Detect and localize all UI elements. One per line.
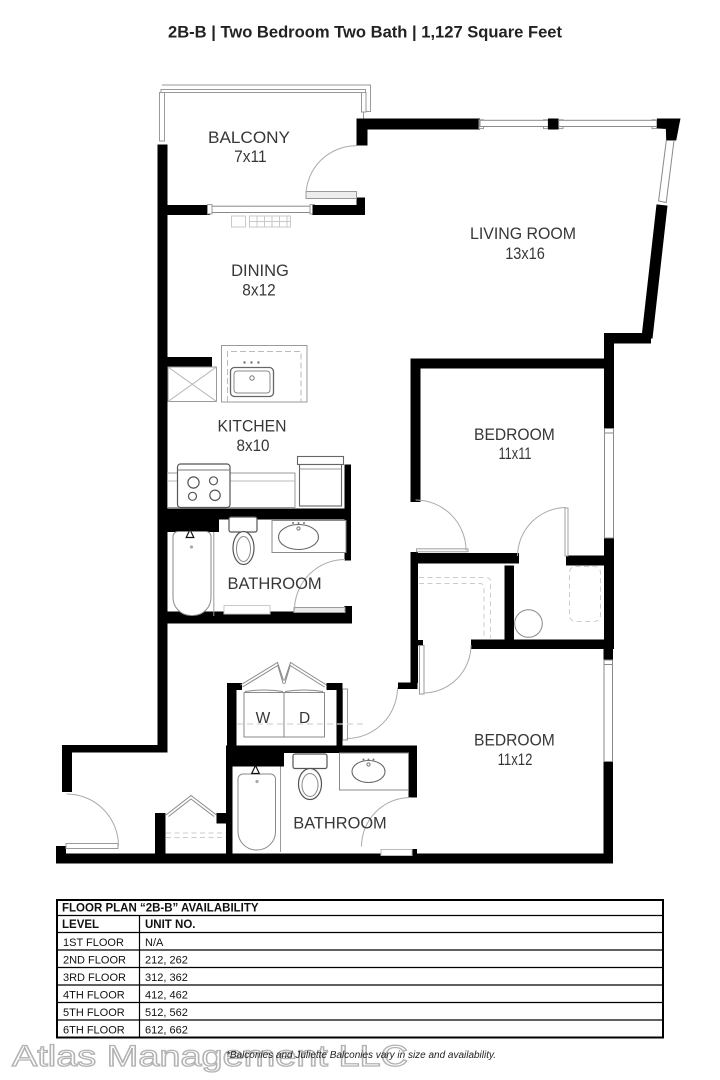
svg-text:1ST FLOOR: 1ST FLOOR <box>63 937 124 949</box>
svg-text:BEDROOM: BEDROOM <box>474 425 555 444</box>
svg-text:8x12: 8x12 <box>242 282 275 300</box>
svg-text:BATHROOM: BATHROOM <box>228 574 322 593</box>
svg-text:412, 462: 412, 462 <box>145 990 188 1002</box>
svg-text:BALCONY: BALCONY <box>208 128 290 147</box>
svg-text:BATHROOM: BATHROOM <box>293 813 386 832</box>
svg-text:11x11: 11x11 <box>499 445 532 463</box>
svg-text:13x16: 13x16 <box>505 245 545 263</box>
svg-text:LIVING ROOM: LIVING ROOM <box>470 224 576 243</box>
svg-text:2B-B | Two Bedroom Two Bath |: 2B-B | Two Bedroom Two Bath | 1,127 Squa… <box>168 23 562 42</box>
svg-text:LEVEL: LEVEL <box>62 919 99 931</box>
svg-text:212, 262: 212, 262 <box>145 955 188 967</box>
svg-text:4TH FLOOR: 4TH FLOOR <box>63 990 125 1002</box>
svg-text:W: W <box>256 710 271 727</box>
svg-text:D: D <box>299 710 310 727</box>
svg-text:612, 662: 612, 662 <box>145 1025 188 1037</box>
svg-text:8x10: 8x10 <box>237 437 270 455</box>
svg-text:512, 562: 512, 562 <box>145 1007 188 1019</box>
svg-text:FLOOR PLAN “2B-B” AVAILABILITY: FLOOR PLAN “2B-B” AVAILABILITY <box>62 903 259 915</box>
svg-text:DINING: DINING <box>231 261 289 280</box>
svg-text:2ND FLOOR: 2ND FLOOR <box>63 955 126 967</box>
svg-text:312, 362: 312, 362 <box>145 972 188 984</box>
svg-text:BEDROOM: BEDROOM <box>474 731 555 750</box>
svg-text:11x12: 11x12 <box>498 751 533 769</box>
svg-text:N/A: N/A <box>145 937 164 949</box>
svg-text:*Balconies and Juliette Balcon: *Balconies and Juliette Balconies vary i… <box>226 1050 496 1061</box>
svg-text:KITCHEN: KITCHEN <box>218 417 287 436</box>
svg-text:3RD FLOOR: 3RD FLOOR <box>63 972 126 984</box>
svg-text:UNIT NO.: UNIT NO. <box>145 919 195 931</box>
svg-text:6TH FLOOR: 6TH FLOOR <box>63 1025 125 1037</box>
svg-text:7x11: 7x11 <box>234 148 267 166</box>
svg-text:5TH FLOOR: 5TH FLOOR <box>63 1007 125 1019</box>
